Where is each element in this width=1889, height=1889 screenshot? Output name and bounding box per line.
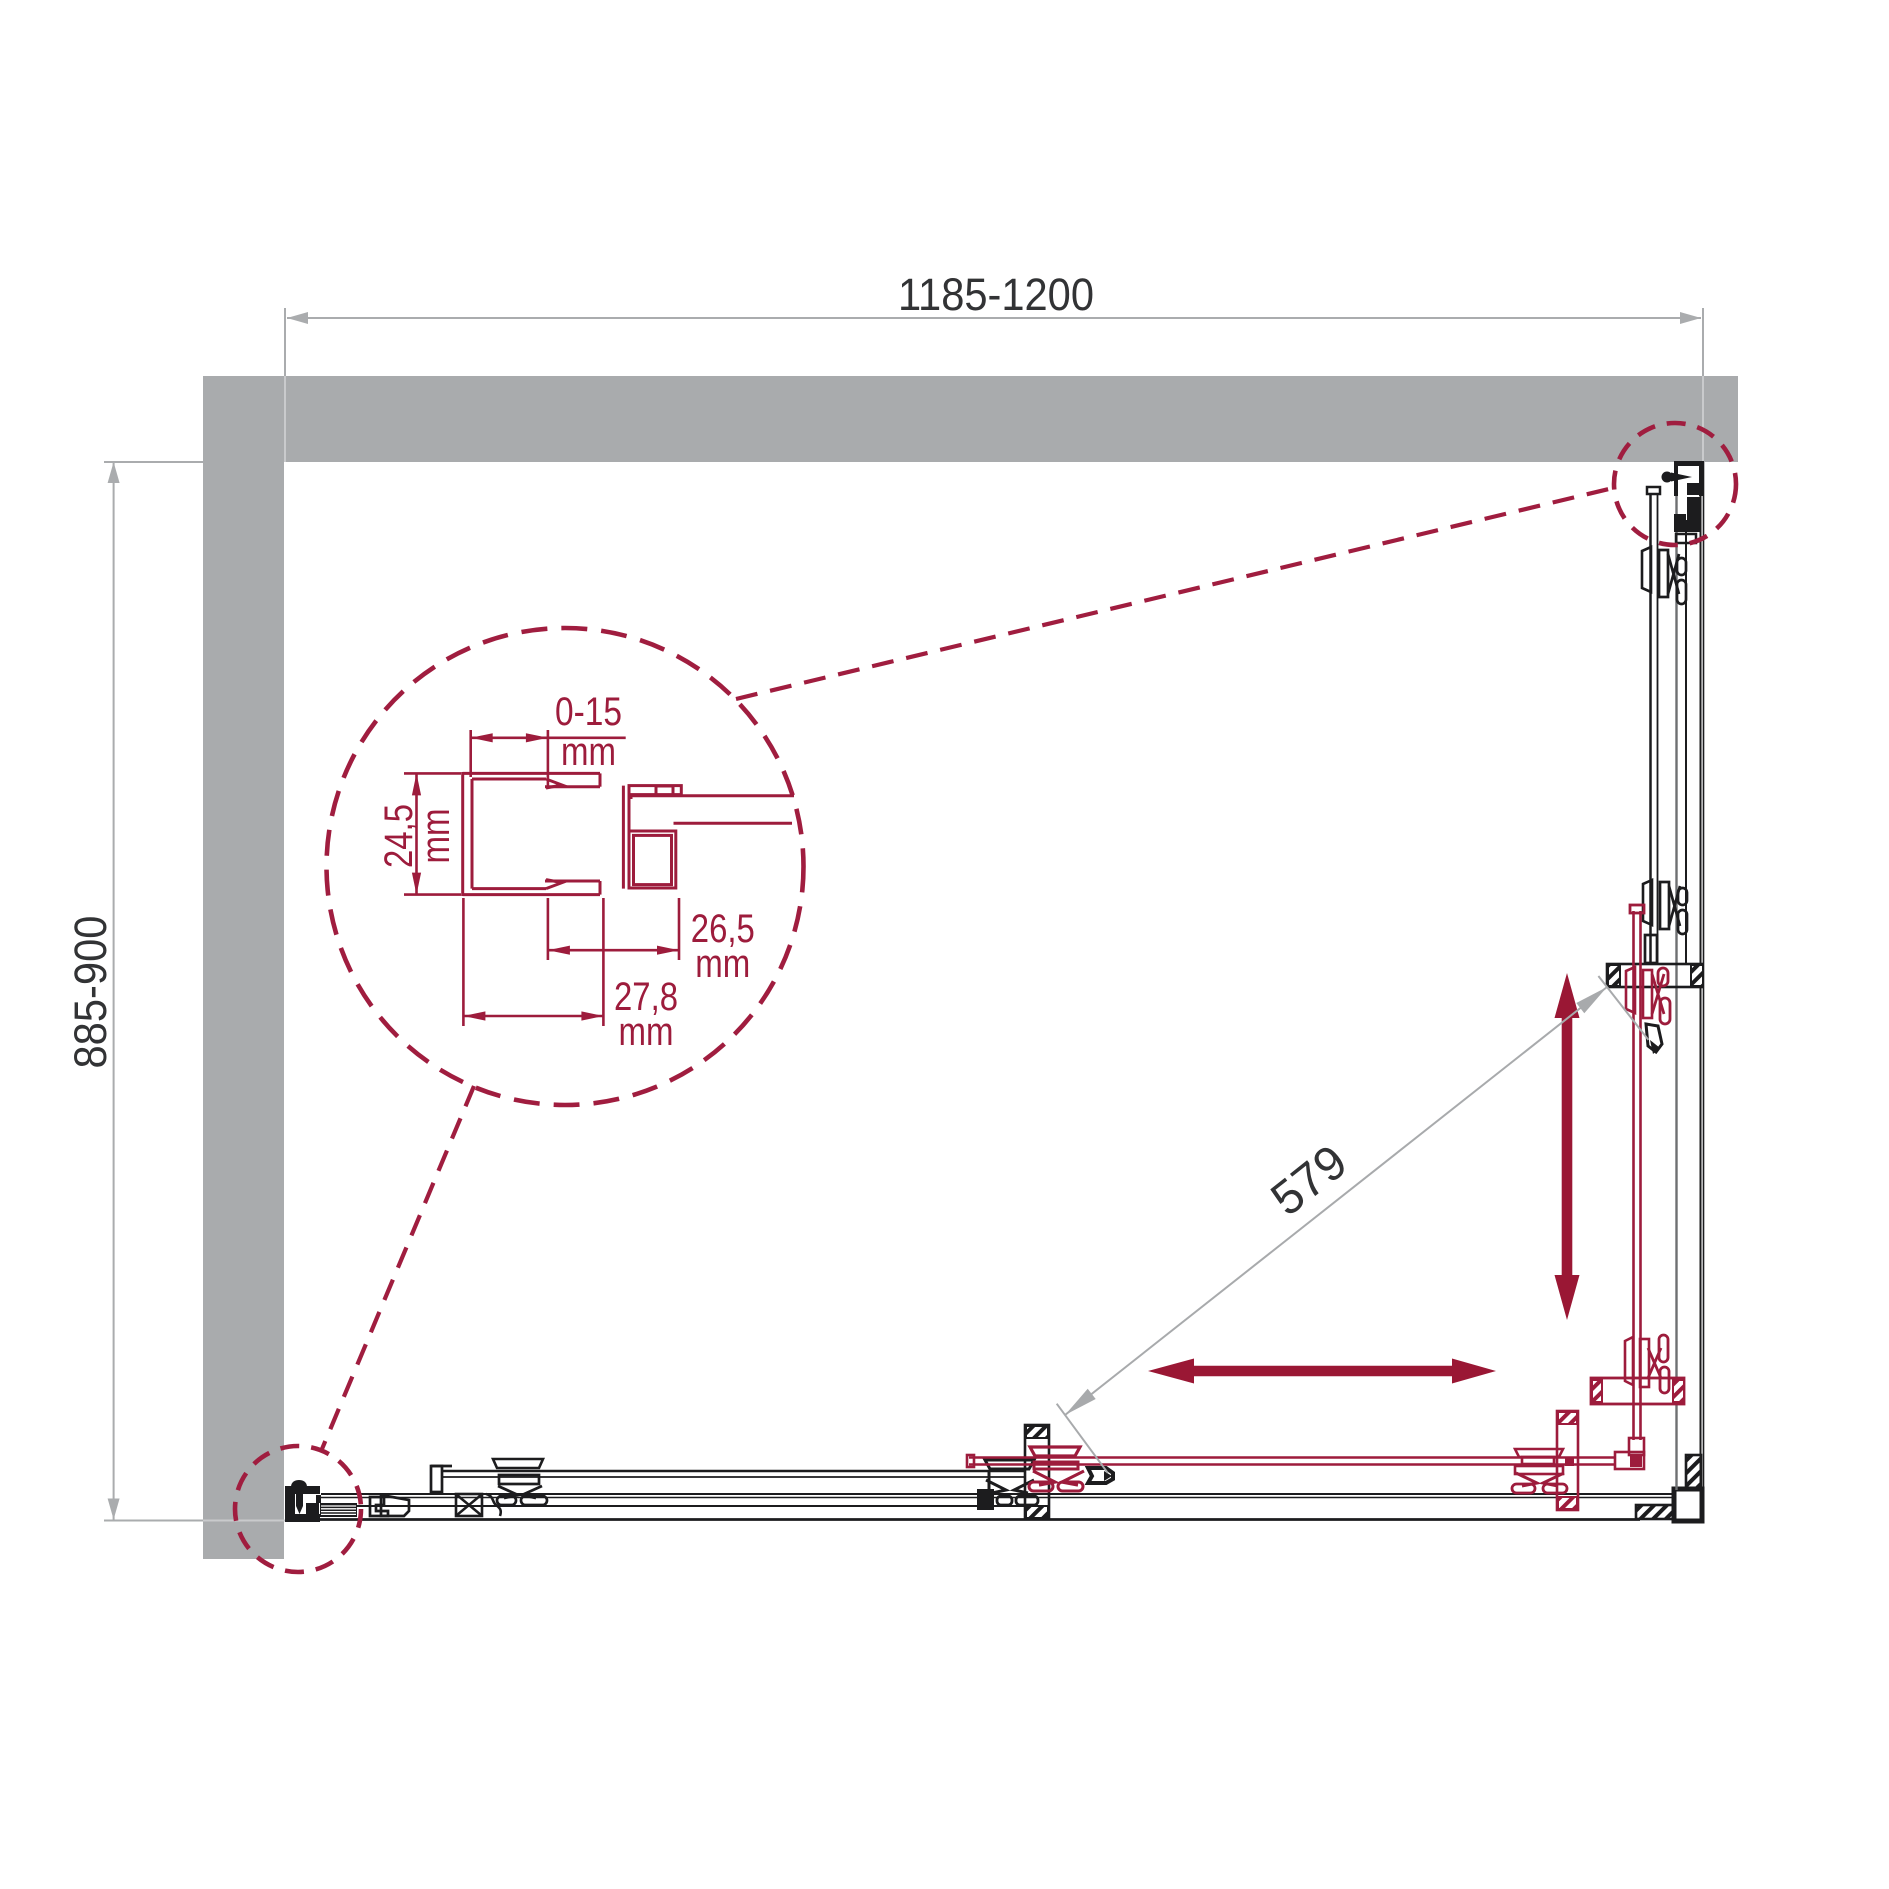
svg-text:mm: mm bbox=[414, 809, 458, 864]
svg-text:0-15: 0-15 bbox=[555, 690, 622, 734]
svg-text:mm: mm bbox=[619, 1010, 674, 1054]
svg-text:1185-1200: 1185-1200 bbox=[898, 269, 1094, 320]
svg-text:mm: mm bbox=[561, 730, 616, 774]
svg-text:mm: mm bbox=[695, 942, 750, 986]
svg-text:885-900: 885-900 bbox=[65, 916, 116, 1069]
